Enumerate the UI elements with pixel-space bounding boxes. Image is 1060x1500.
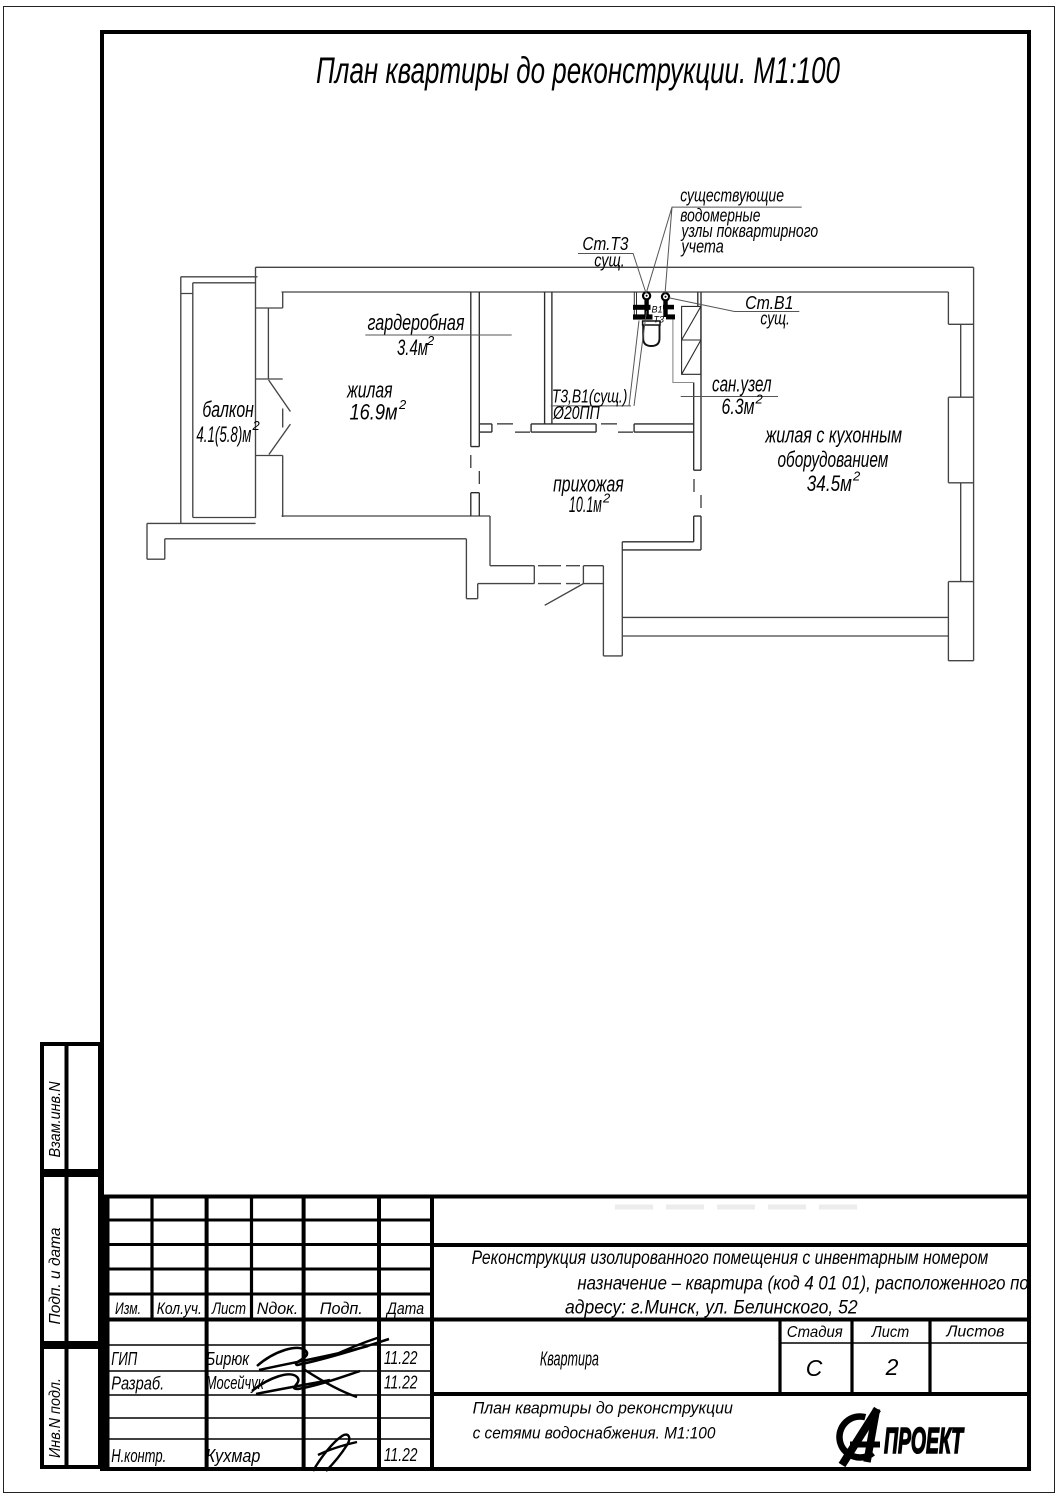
svg-text:Разраб.: Разраб.	[111, 1374, 164, 1394]
svg-text:балкон: балкон	[202, 397, 254, 422]
svg-text:2: 2	[885, 1354, 899, 1380]
svg-text:11.22: 11.22	[384, 1348, 418, 1368]
svg-text:Взам.инв.N: Взам.инв.N	[47, 1081, 64, 1157]
svg-text:Инв.N подл.: Инв.N подл.	[47, 1378, 64, 1458]
svg-text:сущ.: сущ.	[594, 251, 625, 271]
svg-text:назначение – квартира (код 4 0: назначение – квартира (код 4 01 01), рас…	[577, 1274, 1028, 1295]
svg-text:Ø20ПП: Ø20ПП	[552, 403, 600, 423]
svg-text:Дата: Дата	[385, 1299, 424, 1318]
svg-text:С: С	[806, 1355, 823, 1381]
svg-text:16.9м: 16.9м	[350, 400, 398, 425]
svg-text:ГИП: ГИП	[111, 1349, 138, 1369]
svg-text:учета: учета	[680, 236, 724, 256]
svg-text:Листов: Листов	[946, 1324, 1005, 1341]
svg-text:существующие: существующие	[680, 186, 784, 206]
svg-text:34.5м: 34.5м	[807, 471, 852, 496]
svg-text:Nдок.: Nдок.	[257, 1299, 299, 1318]
svg-text:с сетями водоснабжения. М1:100: с сетями водоснабжения. М1:100	[473, 1424, 716, 1443]
svg-text:2: 2	[755, 392, 764, 407]
svg-text:План квартиры до реконструкции: План квартиры до реконструкции	[473, 1399, 734, 1418]
svg-text:Кухмар: Кухмар	[206, 1446, 261, 1466]
svg-text:3.4м: 3.4м	[397, 335, 428, 360]
svg-text:2: 2	[252, 418, 261, 433]
svg-text:сущ.: сущ.	[760, 309, 790, 329]
svg-text:Бирюк: Бирюк	[206, 1349, 251, 1369]
svg-text:План квартиры до реконструкции: План квартиры до реконструкции. М1:100	[316, 50, 840, 91]
svg-text:Лист: Лист	[211, 1299, 246, 1318]
svg-text:2: 2	[852, 469, 861, 484]
svg-text:гардеробная: гардеробная	[368, 310, 465, 335]
svg-text:Реконструкция изолированного п: Реконструкция изолированного помещения с…	[472, 1248, 989, 1269]
svg-text:В1: В1	[652, 305, 663, 315]
svg-text:11.22: 11.22	[384, 1373, 418, 1393]
svg-text:Квартира: Квартира	[540, 1349, 599, 1371]
svg-text:2: 2	[398, 397, 407, 412]
svg-text:2: 2	[426, 333, 435, 348]
svg-text:Подп. и дата: Подп. и дата	[47, 1227, 64, 1324]
svg-text:жилая с кухонным: жилая с кухонным	[764, 423, 902, 448]
svg-text:Лист: Лист	[871, 1324, 909, 1341]
svg-text:4.1(5.8)м: 4.1(5.8)м	[196, 422, 251, 447]
svg-text:оборудованием: оборудованием	[778, 447, 889, 472]
svg-text:Подп.: Подп.	[320, 1299, 363, 1318]
svg-text:Стадия: Стадия	[787, 1324, 843, 1341]
svg-text:Н.контр.: Н.контр.	[111, 1446, 166, 1466]
svg-text:2: 2	[602, 491, 611, 506]
svg-text:ПРОЕКТ: ПРОЕКТ	[884, 1420, 965, 1461]
svg-text:6.3м: 6.3м	[722, 394, 755, 419]
svg-text:Кол.уч.: Кол.уч.	[157, 1299, 202, 1318]
svg-text:Т3: Т3	[654, 315, 665, 325]
svg-text:Изм.: Изм.	[115, 1299, 141, 1318]
svg-text:Мосейчук: Мосейчук	[206, 1373, 265, 1393]
svg-text:11.22: 11.22	[384, 1445, 418, 1465]
svg-text:10.1м: 10.1м	[569, 492, 602, 517]
svg-text:адресу: г.Минск, ул. Белинског: адресу: г.Минск, ул. Белинского, 52	[565, 1298, 858, 1319]
